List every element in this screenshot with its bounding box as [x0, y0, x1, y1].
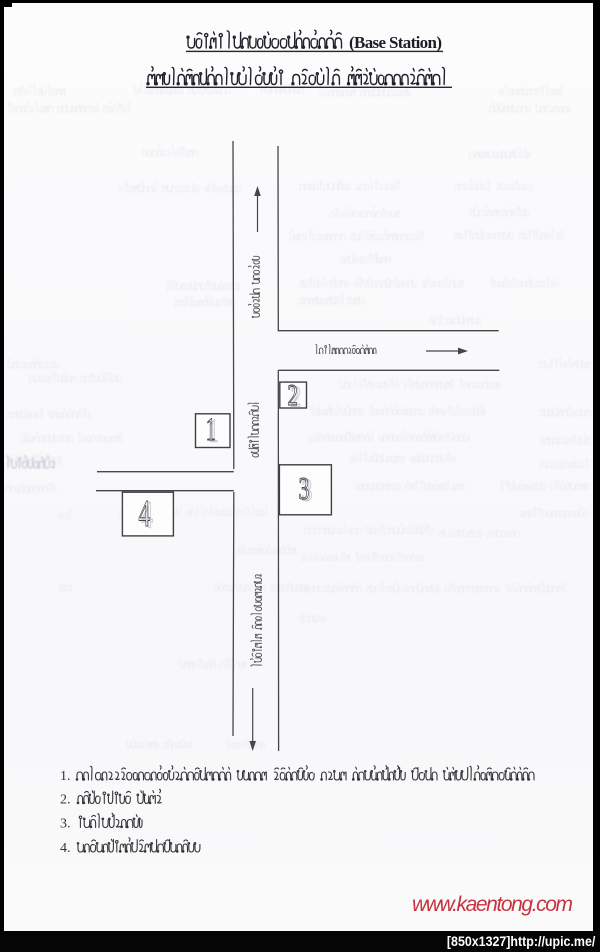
svg-text:4.: 4.: [60, 841, 71, 856]
svg-text:2: 2: [287, 377, 298, 412]
svg-text:1.: 1.: [60, 769, 71, 784]
svg-text:1: 1: [206, 411, 216, 447]
svg-text:www.kaentong.com: www.kaentong.com: [412, 893, 573, 916]
svg-text:4: 4: [139, 493, 151, 535]
svg-text:3.: 3.: [60, 817, 71, 832]
svg-text:(Base Station): (Base Station): [349, 33, 442, 52]
svg-text:2.: 2.: [60, 793, 71, 808]
svg-text:3: 3: [298, 471, 309, 506]
